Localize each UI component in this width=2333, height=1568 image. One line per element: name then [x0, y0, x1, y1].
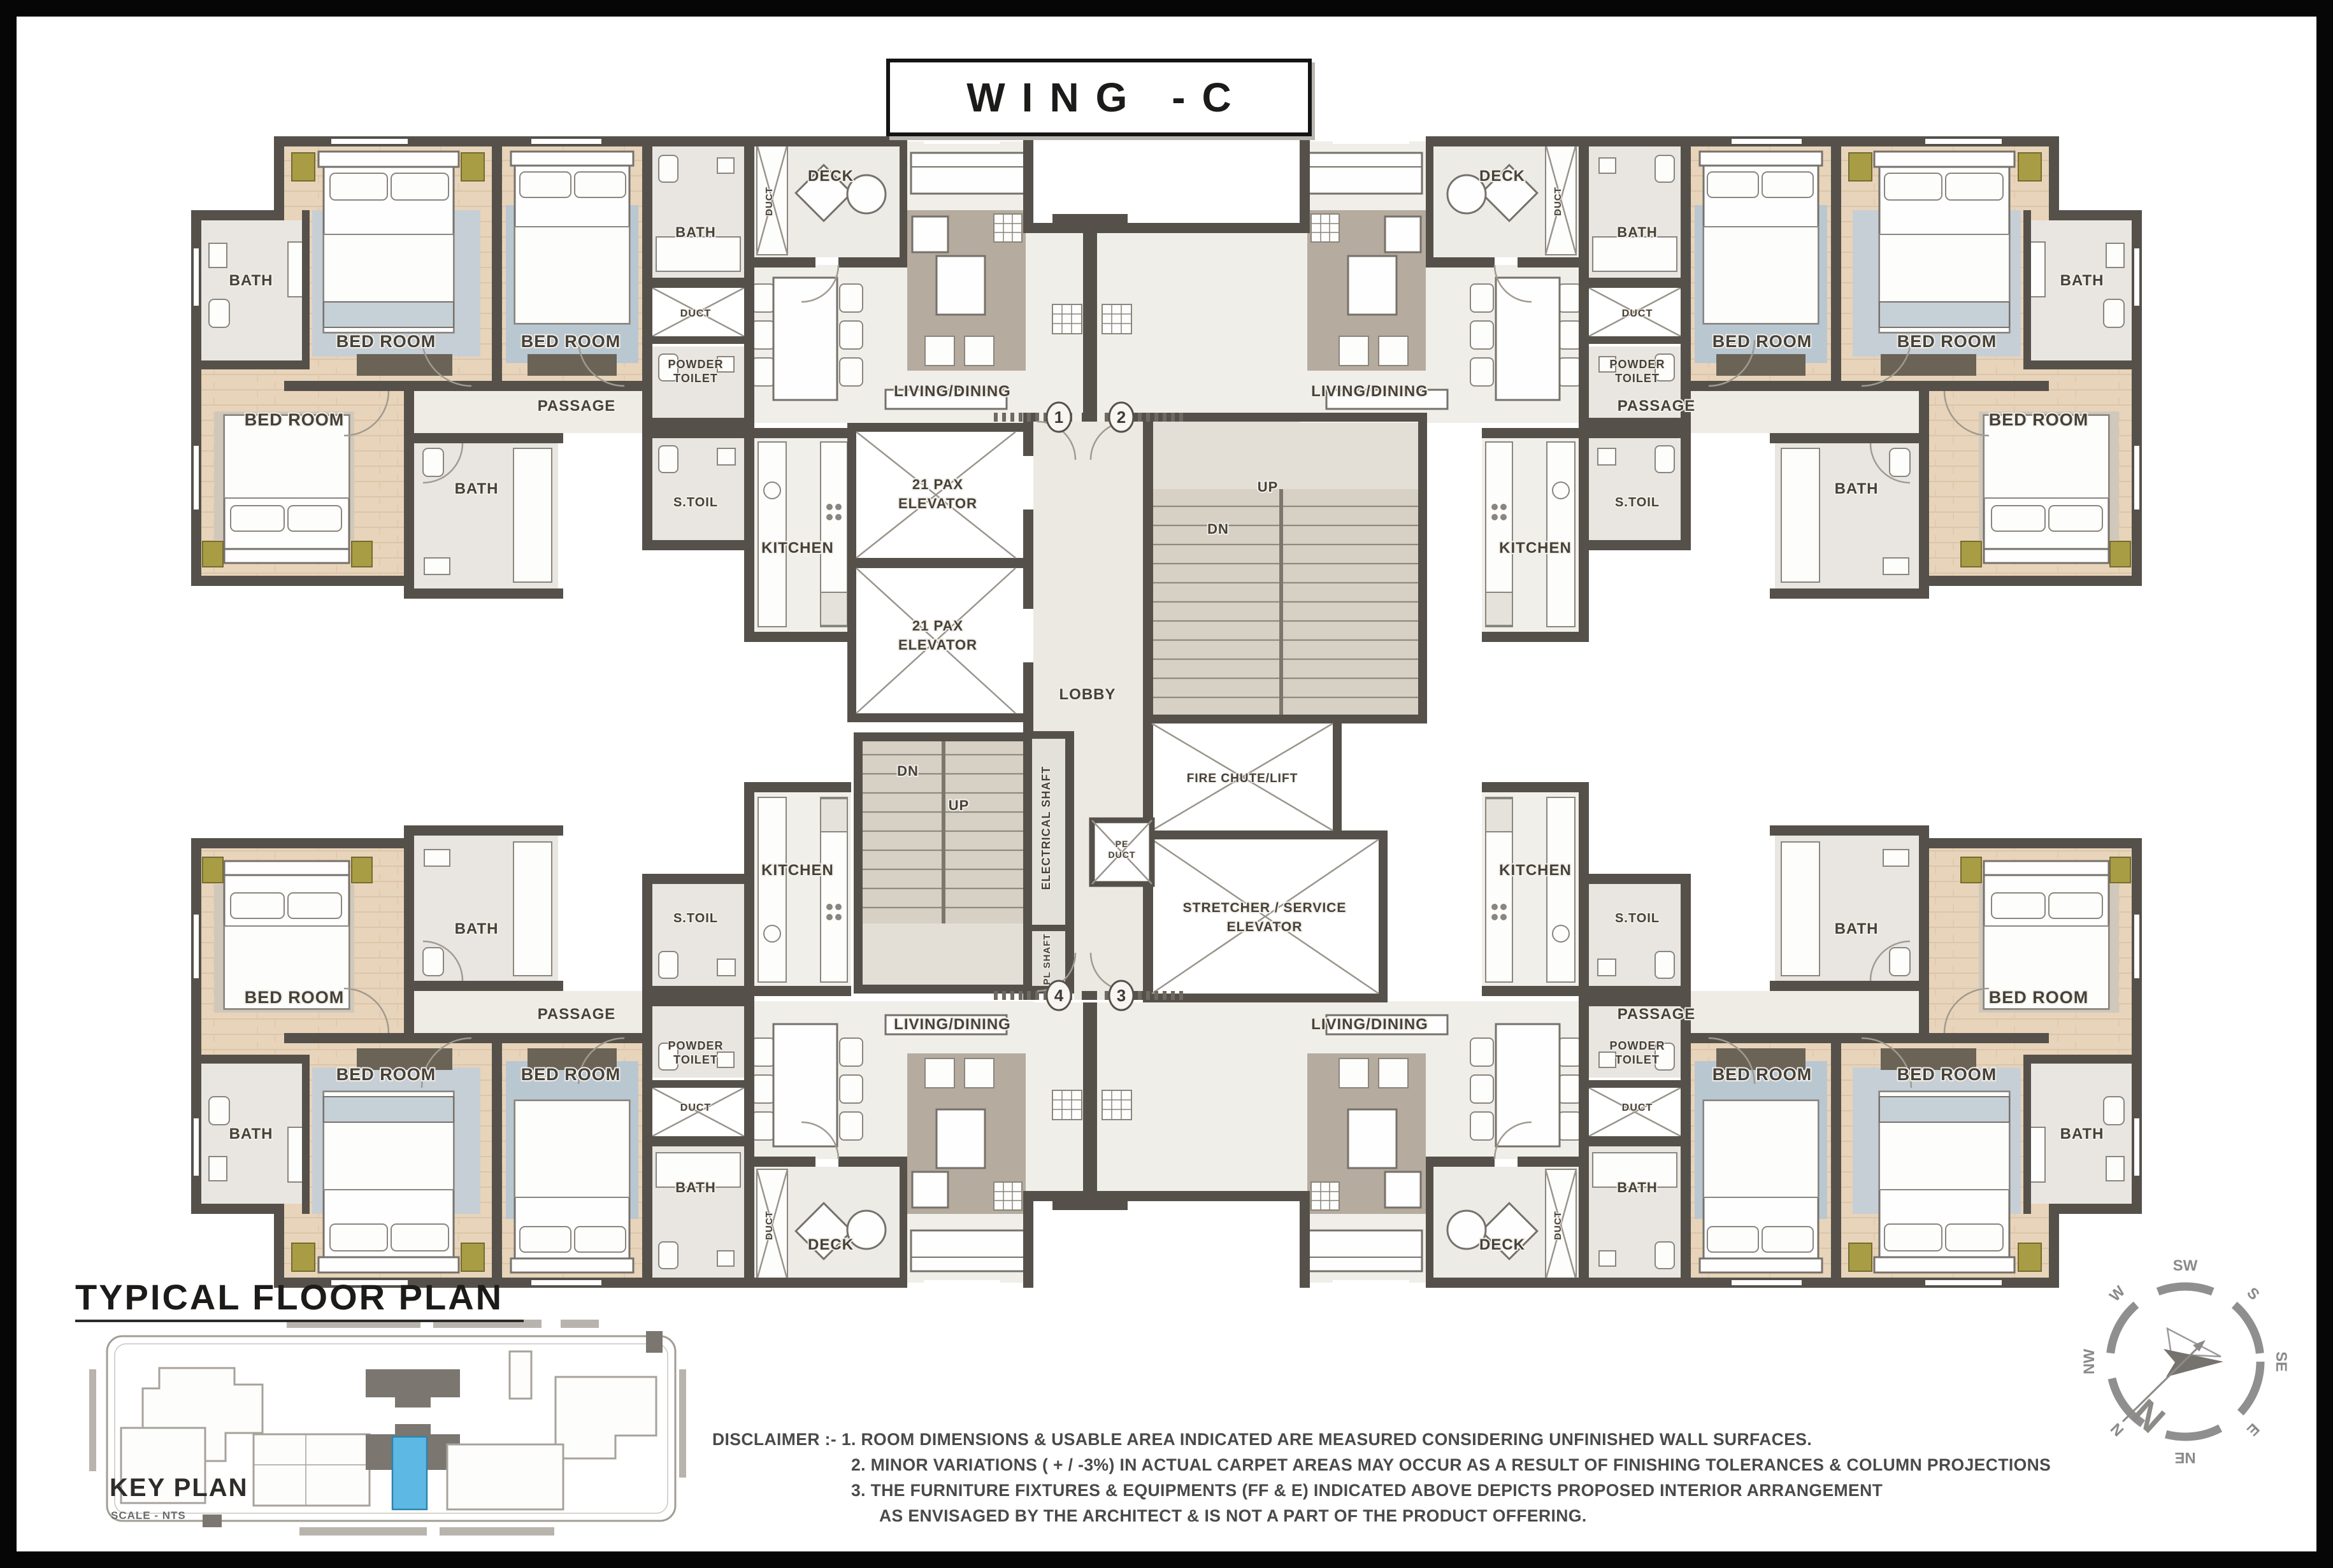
room-label: BED ROOM [1712, 332, 1813, 351]
key-plan-scale: SCALE - NTS [111, 1509, 186, 1522]
svg-text:4: 4 [1054, 986, 1064, 1005]
room-label: KITCHEN [761, 539, 834, 557]
disclaimer-line: 3. THE FURNITURE FIXTURES & EQUIPMENTS (… [851, 1478, 2051, 1503]
room-label: PASSAGE [538, 397, 616, 415]
compass-direction-NE: NE [2174, 1449, 2195, 1466]
room-label: BED ROOM [1712, 1065, 1813, 1084]
room-label: BED ROOM [521, 1065, 621, 1084]
svg-text:1: 1 [1054, 408, 1063, 427]
drawing-sheet: N NNEESESSWWNW BATHBED ROOMBED ROOMBED R… [0, 0, 2333, 1568]
room-label: DUCT [764, 187, 775, 216]
room-label: BATH [2060, 272, 2104, 289]
svg-text:2: 2 [1117, 408, 1126, 427]
disclaimer-line: 2. MINOR VARIATIONS ( + / -3%) IN ACTUAL… [851, 1452, 2051, 1478]
room-label: LIVING/DINING [894, 383, 1011, 400]
door-number-4: 4 [1047, 981, 1071, 1010]
room-label: PASSAGE [1618, 397, 1696, 415]
room-label: PASSAGE [538, 1006, 616, 1023]
compass-direction-SW: SW [2173, 1257, 2198, 1274]
room-label: BED ROOM [521, 332, 621, 351]
room-label: LIVING/DINING [894, 1016, 1011, 1033]
room-label: DECK [1479, 167, 1525, 185]
door-number-3: 3 [1109, 981, 1133, 1010]
key-plan-label: KEY PLAN [110, 1474, 248, 1502]
room-label: S.TOIL [673, 495, 718, 510]
room-label: LOBBY [1059, 686, 1116, 703]
room-label: LIVING/DINING [1311, 383, 1428, 400]
room-label: PASSAGE [1618, 1006, 1696, 1023]
room-label: DUCT [764, 1211, 775, 1240]
room-label: BATH [675, 224, 715, 240]
room-label: ELECTRICAL SHAFT [1040, 766, 1052, 890]
room-label: BED ROOM [245, 988, 345, 1007]
room-label: KITCHEN [1499, 862, 1572, 879]
floor-plan-svg: N NNEESESSWWNW BATHBED ROOMBED ROOMBED R… [0, 0, 2333, 1568]
compass-direction-SE: SE [2272, 1351, 2290, 1372]
room-label: DUCT [1622, 308, 1653, 319]
room-label: BED ROOM [1989, 988, 2089, 1007]
room-label: S.TOIL [1615, 495, 1660, 510]
room-label: BED ROOM [1989, 410, 2089, 429]
room-label: DECK [1479, 1236, 1525, 1253]
compass-direction-S: S [2243, 1284, 2262, 1303]
room-label: DUCT [1553, 187, 1563, 216]
room-label: BATH [455, 920, 499, 937]
room-label: BATH [229, 272, 273, 289]
room-label: DUCT [1622, 1102, 1653, 1113]
room-label: DECK [808, 1236, 854, 1253]
room-label: LIVING/DINING [1311, 1016, 1428, 1033]
room-label: DECK [808, 167, 854, 185]
room-label: UP [1258, 479, 1279, 495]
key-plan-highlighted-wing [392, 1437, 427, 1509]
room-label: FIRE CHUTE/LIFT [1187, 772, 1298, 785]
compass-direction-NW: NW [2081, 1349, 2098, 1374]
room-label: BATH [455, 480, 499, 497]
wing-title: WING -C [950, 74, 1248, 121]
compass-north-letter: N [2124, 1391, 2173, 1441]
disclaimer-block: DISCLAIMER :- 1. ROOM DIMENSIONS & USABL… [712, 1427, 2051, 1529]
title-box: WING -C [886, 59, 1312, 136]
room-label: BED ROOM [336, 332, 436, 351]
room-label: BED ROOM [336, 1065, 436, 1084]
room-label: BATH [1617, 1180, 1657, 1195]
svg-text:3: 3 [1117, 986, 1126, 1005]
room-label: PL SHAFT [1042, 933, 1052, 985]
compass-direction-E: E [2243, 1420, 2262, 1439]
room-label: DUCT [680, 308, 711, 319]
room-label: BED ROOM [245, 410, 345, 429]
room-label: DN [897, 763, 919, 779]
room-label: BATH [1835, 480, 1879, 497]
room-label: S.TOIL [673, 911, 718, 925]
plan-heading: TYPICAL FLOOR PLAN [75, 1276, 503, 1318]
disclaimer-line: AS ENVISAGED BY THE ARCHITECT & IS NOT A… [879, 1503, 2051, 1529]
room-label: DUCT [1553, 1211, 1563, 1240]
room-label: KITCHEN [761, 862, 834, 879]
room-label: BATH [1617, 224, 1657, 240]
disclaimer-line: DISCLAIMER :- 1. ROOM DIMENSIONS & USABL… [712, 1427, 2051, 1452]
room-label: BED ROOM [1897, 332, 1997, 351]
room-label: BATH [229, 1125, 273, 1143]
compass-rose: N NNEESESSWWNW [2081, 1257, 2290, 1466]
room-label: BATH [1835, 920, 1879, 937]
door-number-1: 1 [1047, 403, 1071, 432]
room-label: S.TOIL [1615, 911, 1660, 925]
room-label: UP [949, 797, 970, 813]
room-label: KITCHEN [1499, 539, 1572, 557]
apartment-bottom-right [1300, 782, 2142, 1288]
room-label: DN [1207, 521, 1229, 537]
room-label: BATH [2060, 1125, 2104, 1143]
room-label: BED ROOM [1897, 1065, 1997, 1084]
compass-direction-W: W [2106, 1283, 2128, 1305]
room-label: BATH [675, 1180, 715, 1195]
key-plan [89, 1320, 686, 1536]
room-label: DUCT [680, 1102, 711, 1113]
plan-heading-rule [75, 1320, 524, 1322]
door-number-2: 2 [1109, 403, 1133, 432]
